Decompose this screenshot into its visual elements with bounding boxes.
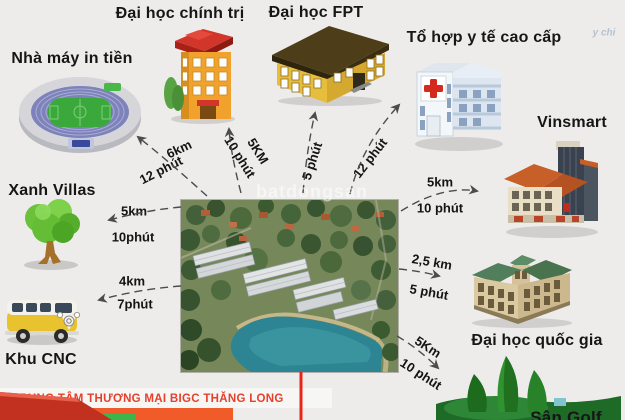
mall-roof-icon: [0, 384, 120, 420]
arrow-to-xanh-villas: [109, 207, 181, 220]
arrow-to-san-golf: [397, 336, 438, 368]
arrow-to-khu-cnc: [99, 286, 181, 300]
arrow-to-stadium: [138, 137, 207, 196]
arrow-to-vinsmart: [401, 190, 477, 211]
location-map-infographic: batdongsan y chi: [0, 0, 625, 420]
arrow-to-quoc-gia: [399, 269, 439, 276]
watermark-text: batdongsan: [256, 182, 368, 203]
route-arrows: [0, 0, 625, 420]
arrow-to-chinh-tri: [229, 129, 241, 193]
